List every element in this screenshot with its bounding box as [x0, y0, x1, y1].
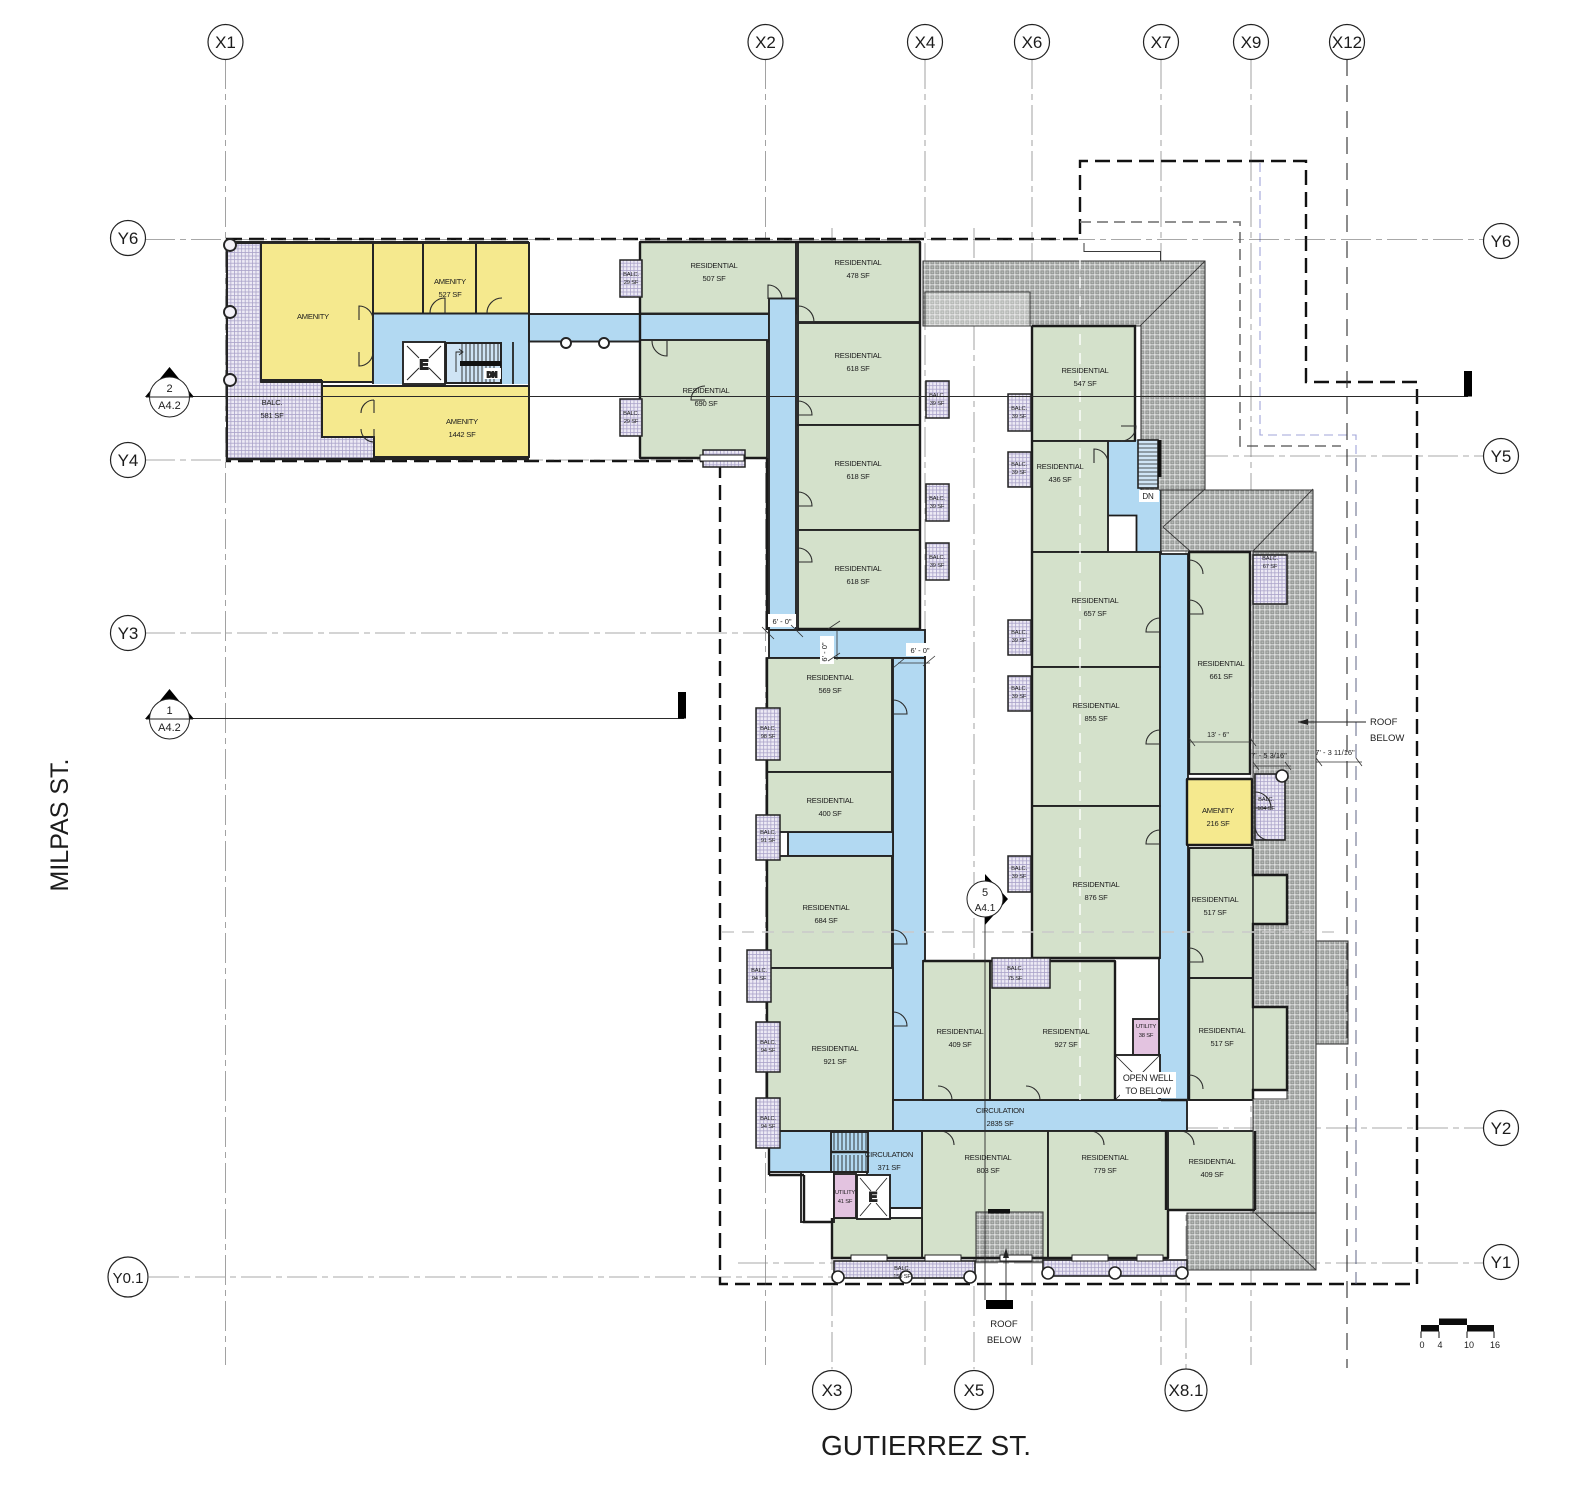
svg-text:0: 0: [1419, 1340, 1424, 1350]
svg-text:BALC.: BALC.: [760, 1040, 776, 1046]
svg-text:RESIDENTIAL: RESIDENTIAL: [1072, 701, 1119, 710]
svg-text:RESIDENTIAL: RESIDENTIAL: [1081, 1153, 1128, 1162]
svg-text:927 SF: 927 SF: [1055, 1040, 1079, 1049]
svg-text:38 SF: 38 SF: [1139, 1033, 1154, 1039]
svg-text:Y1: Y1: [1491, 1253, 1512, 1272]
svg-text:RESIDENTIAL: RESIDENTIAL: [964, 1153, 1011, 1162]
svg-text:AMENITY: AMENITY: [297, 312, 329, 321]
svg-text:94 SF: 94 SF: [752, 976, 767, 982]
svg-text:39 SF: 39 SF: [930, 401, 945, 407]
svg-text:BALC.: BALC.: [1011, 866, 1027, 872]
svg-text:75 SF: 75 SF: [1008, 976, 1023, 982]
svg-text:2835 SF: 2835 SF: [987, 1119, 1015, 1128]
svg-text:876 SF: 876 SF: [1085, 893, 1109, 902]
svg-text:BELOW: BELOW: [1370, 733, 1404, 744]
svg-text:Y3: Y3: [118, 624, 139, 643]
svg-text:RESIDENTIAL: RESIDENTIAL: [811, 1044, 858, 1053]
svg-text:517 SF: 517 SF: [1211, 1039, 1235, 1048]
svg-text:A4.1: A4.1: [975, 903, 996, 914]
svg-text:Y5: Y5: [1491, 447, 1512, 466]
svg-text:AMENITY: AMENITY: [1202, 806, 1234, 815]
svg-text:X2: X2: [755, 33, 776, 52]
svg-text:16: 16: [1490, 1340, 1500, 1350]
svg-text:E: E: [869, 1190, 877, 1204]
svg-text:684 SF: 684 SF: [815, 916, 839, 925]
svg-text:ROOF: ROOF: [990, 1319, 1018, 1330]
svg-text:371 SF: 371 SF: [878, 1163, 902, 1172]
svg-text:RESIDENTIAL: RESIDENTIAL: [1188, 1157, 1235, 1166]
svg-text:RESIDENTIAL: RESIDENTIAL: [1072, 880, 1119, 889]
svg-text:RESIDENTIAL: RESIDENTIAL: [806, 673, 853, 682]
svg-text:BALC.: BALC.: [1258, 797, 1274, 803]
svg-text:39 SF: 39 SF: [1012, 694, 1027, 700]
svg-text:661 SF: 661 SF: [1210, 672, 1234, 681]
svg-text:DN: DN: [487, 372, 497, 379]
svg-text:GUTIERREZ ST.: GUTIERREZ ST.: [821, 1430, 1031, 1461]
svg-text:X4: X4: [915, 33, 936, 52]
svg-text:4: 4: [1437, 1340, 1442, 1350]
svg-text:39 SF: 39 SF: [1012, 874, 1027, 880]
svg-text:RESIDENTIAL: RESIDENTIAL: [834, 459, 881, 468]
svg-text:RESIDENTIAL: RESIDENTIAL: [834, 564, 881, 573]
svg-text:7' - 5 3/16": 7' - 5 3/16": [1251, 751, 1287, 760]
svg-text:MILPAS ST.: MILPAS ST.: [46, 759, 74, 892]
svg-text:BALC.: BALC.: [894, 1266, 910, 1272]
svg-text:BALC.: BALC.: [623, 411, 639, 417]
svg-text:409 SF: 409 SF: [1201, 1170, 1225, 1179]
svg-text:RESIDENTIAL: RESIDENTIAL: [682, 386, 729, 395]
svg-text:X7: X7: [1151, 33, 1172, 52]
svg-text:Y0.1: Y0.1: [113, 1270, 144, 1287]
svg-text:29 SF: 29 SF: [624, 419, 639, 425]
svg-text:UTILITY: UTILITY: [835, 1190, 856, 1196]
svg-text:RESIDENTIAL: RESIDENTIAL: [1071, 596, 1118, 605]
svg-text:BALC.: BALC.: [1011, 406, 1027, 412]
svg-text:6' - 0": 6' - 0": [910, 646, 929, 655]
svg-text:159 SF: 159 SF: [893, 1274, 911, 1280]
svg-text:779 SF: 779 SF: [1094, 1166, 1118, 1175]
svg-text:RESIDENTIAL: RESIDENTIAL: [936, 1027, 983, 1036]
svg-text:BELOW: BELOW: [987, 1335, 1021, 1346]
svg-text:803 SF: 803 SF: [977, 1166, 1001, 1175]
svg-text:569 SF: 569 SF: [819, 686, 843, 695]
svg-text:41 SF: 41 SF: [838, 1199, 853, 1205]
svg-text:X3: X3: [822, 1381, 843, 1400]
svg-text:Y4: Y4: [118, 451, 139, 470]
svg-text:ROOF: ROOF: [1370, 717, 1398, 728]
svg-text:921 SF: 921 SF: [824, 1057, 848, 1066]
svg-text:AMENITY: AMENITY: [446, 417, 478, 426]
svg-text:RESIDENTIAL: RESIDENTIAL: [1198, 1026, 1245, 1035]
svg-text:X5: X5: [964, 1381, 985, 1400]
svg-text:216 SF: 216 SF: [1207, 819, 1231, 828]
svg-text:94 SF: 94 SF: [761, 1048, 776, 1054]
svg-text:547 SF: 547 SF: [1074, 379, 1098, 388]
svg-text:BALC.: BALC.: [929, 496, 945, 502]
svg-text:CIRCULATION: CIRCULATION: [976, 1106, 1024, 1115]
svg-text:BALC.: BALC.: [929, 555, 945, 561]
svg-text:UTILITY: UTILITY: [1136, 1024, 1157, 1030]
svg-text:RESIDENTIAL: RESIDENTIAL: [690, 261, 737, 270]
svg-text:98 SF: 98 SF: [761, 734, 776, 740]
svg-text:RESIDENTIAL: RESIDENTIAL: [806, 796, 853, 805]
svg-text:400 SF: 400 SF: [819, 809, 843, 818]
svg-text:855 SF: 855 SF: [1085, 714, 1109, 723]
svg-text:X6: X6: [1022, 33, 1043, 52]
svg-text:AMENITY: AMENITY: [434, 277, 466, 286]
svg-text:Y2: Y2: [1491, 1119, 1512, 1138]
svg-text:RESIDENTIAL: RESIDENTIAL: [1197, 659, 1244, 668]
svg-text:RESIDENTIAL: RESIDENTIAL: [834, 258, 881, 267]
svg-text:BALC.: BALC.: [1011, 630, 1027, 636]
svg-text:5: 5: [982, 887, 988, 899]
svg-text:RESIDENTIAL: RESIDENTIAL: [1042, 1027, 1089, 1036]
svg-text:BALC.: BALC.: [623, 272, 639, 278]
svg-text:RESIDENTIAL: RESIDENTIAL: [834, 351, 881, 360]
svg-text:E: E: [420, 357, 429, 372]
svg-text:94 SF: 94 SF: [761, 1124, 776, 1130]
svg-text:A4.2: A4.2: [158, 722, 181, 734]
svg-text:Y6: Y6: [118, 229, 139, 248]
svg-text:OPEN WELL: OPEN WELL: [1123, 1073, 1174, 1083]
svg-text:91 SF: 91 SF: [761, 838, 776, 844]
svg-text:CIRCULATION: CIRCULATION: [865, 1150, 913, 1159]
svg-text:7' - 3 11/16": 7' - 3 11/16": [1315, 748, 1355, 757]
svg-text:DN: DN: [1142, 492, 1154, 501]
svg-text:39 SF: 39 SF: [930, 563, 945, 569]
svg-text:409 SF: 409 SF: [949, 1040, 973, 1049]
svg-text:690 SF: 690 SF: [695, 399, 719, 408]
svg-text:39 SF: 39 SF: [1012, 470, 1027, 476]
svg-text:BALC.: BALC.: [1262, 556, 1278, 562]
svg-text:RESIDENTIAL: RESIDENTIAL: [802, 903, 849, 912]
svg-text:436 SF: 436 SF: [1049, 475, 1073, 484]
svg-text:13' - 6": 13' - 6": [1207, 732, 1229, 739]
svg-text:6' - 0": 6' - 0": [820, 642, 829, 661]
svg-text:29 SF: 29 SF: [624, 280, 639, 286]
svg-text:BALC.: BALC.: [751, 968, 767, 974]
svg-text:6' - 0": 6' - 0": [772, 617, 791, 626]
svg-text:X9: X9: [1241, 33, 1262, 52]
svg-text:BALC.: BALC.: [760, 1116, 776, 1122]
svg-text:527 SF: 527 SF: [439, 290, 463, 299]
svg-text:67 SF: 67 SF: [1263, 564, 1278, 570]
svg-text:RESIDENTIAL: RESIDENTIAL: [1061, 366, 1108, 375]
svg-text:478 SF: 478 SF: [847, 271, 871, 280]
svg-text:507 SF: 507 SF: [703, 274, 727, 283]
svg-text:39 SF: 39 SF: [930, 504, 945, 510]
svg-text:39 SF: 39 SF: [1012, 414, 1027, 420]
svg-text:39 SF: 39 SF: [1012, 638, 1027, 644]
svg-text:1442 SF: 1442 SF: [449, 430, 477, 439]
svg-text:RESIDENTIAL: RESIDENTIAL: [1036, 462, 1083, 471]
svg-text:Y6: Y6: [1491, 232, 1512, 251]
svg-text:BALC.: BALC.: [1007, 966, 1023, 972]
svg-text:618 SF: 618 SF: [847, 364, 871, 373]
svg-text:2: 2: [166, 383, 172, 395]
svg-text:618 SF: 618 SF: [847, 472, 871, 481]
svg-text:1: 1: [166, 705, 172, 717]
svg-text:X1: X1: [215, 33, 236, 52]
svg-text:657 SF: 657 SF: [1084, 609, 1108, 618]
svg-text:A4.2: A4.2: [158, 400, 181, 412]
svg-text:BALC.: BALC.: [1011, 462, 1027, 468]
svg-text:618 SF: 618 SF: [847, 577, 871, 586]
svg-text:581 SF: 581 SF: [261, 411, 285, 420]
svg-text:X12: X12: [1332, 33, 1362, 52]
svg-text:104 SF: 104 SF: [1257, 806, 1275, 812]
svg-text:BALC.: BALC.: [1011, 686, 1027, 692]
svg-text:BALC.: BALC.: [262, 398, 283, 407]
svg-text:BALC.: BALC.: [929, 393, 945, 399]
svg-text:10: 10: [1464, 1340, 1474, 1350]
svg-text:517 SF: 517 SF: [1204, 908, 1228, 917]
svg-text:TO BELOW: TO BELOW: [1125, 1086, 1171, 1096]
svg-text:RESIDENTIAL: RESIDENTIAL: [1191, 895, 1238, 904]
svg-text:BALC.: BALC.: [760, 830, 776, 836]
svg-text:X8.1: X8.1: [1169, 1381, 1204, 1400]
svg-text:BALC.: BALC.: [760, 726, 776, 732]
